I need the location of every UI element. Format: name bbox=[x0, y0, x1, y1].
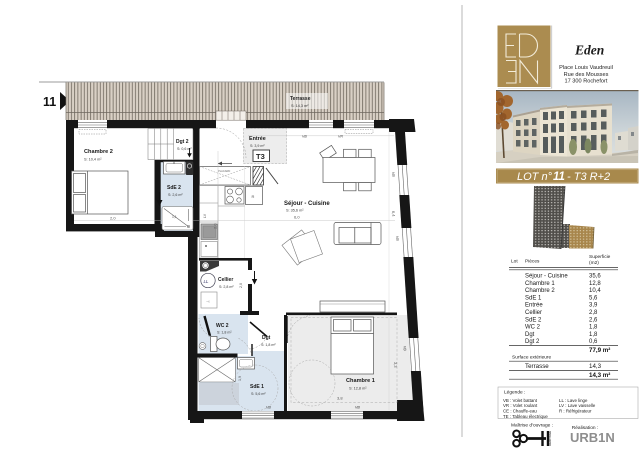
svg-text:S: 2,6 m²: S: 2,6 m² bbox=[168, 193, 183, 197]
svg-text:SdE 1: SdE 1 bbox=[250, 384, 264, 390]
svg-text:HERITAGE: HERITAGE bbox=[548, 431, 552, 446]
svg-text:VR : Volet roulant: VR : Volet roulant bbox=[503, 403, 538, 408]
svg-text:1,8: 1,8 bbox=[589, 332, 598, 338]
svg-text:LL : Lave linge: LL : Lave linge bbox=[559, 398, 588, 403]
svg-text:S: 12,8 m²: S: 12,8 m² bbox=[349, 387, 367, 391]
svg-text:0,6: 0,6 bbox=[589, 339, 598, 345]
svg-text:Légende :: Légende : bbox=[504, 390, 525, 396]
svg-text:⊣: ⊣ bbox=[206, 299, 210, 304]
svg-text:TE : Tableau électrique: TE : Tableau électrique bbox=[503, 414, 548, 419]
svg-text:S: 1,8 m²: S: 1,8 m² bbox=[261, 343, 276, 347]
svg-text:Superficie: Superficie bbox=[589, 254, 611, 260]
svg-text:Séjour - Cuisine: Séjour - Cuisine bbox=[525, 274, 568, 280]
svg-text:10,4: 10,4 bbox=[589, 288, 601, 294]
svg-text:VB: VB bbox=[391, 172, 395, 178]
svg-text:SdE 1: SdE 1 bbox=[525, 295, 542, 301]
svg-text:S: 10,4 m²: S: 10,4 m² bbox=[84, 158, 102, 162]
svg-text:12,8: 12,8 bbox=[589, 281, 601, 287]
svg-text:LL: LL bbox=[204, 279, 210, 284]
svg-text:14,3: 14,3 bbox=[589, 363, 602, 370]
svg-text:S: 35,6 m²: S: 35,6 m² bbox=[286, 209, 304, 213]
svg-text:11: 11 bbox=[553, 171, 565, 183]
svg-text:S: 5,6 m²: S: 5,6 m² bbox=[251, 392, 266, 396]
svg-text:(m2): (m2) bbox=[589, 260, 599, 266]
svg-text:Place Louis Vaudreuil: Place Louis Vaudreuil bbox=[559, 65, 613, 71]
svg-text:Chambre 2: Chambre 2 bbox=[525, 288, 555, 294]
svg-text:Chambre 1: Chambre 1 bbox=[525, 281, 555, 287]
svg-text:Entrée: Entrée bbox=[525, 303, 543, 309]
svg-text:VB : Volet battant: VB : Volet battant bbox=[503, 398, 538, 403]
svg-text:CE : Chauffe-eau: CE : Chauffe-eau bbox=[503, 409, 537, 414]
svg-text:LOT n°: LOT n° bbox=[517, 171, 553, 183]
svg-text:S: 2,8 m²: S: 2,8 m² bbox=[219, 285, 234, 289]
svg-text:2,0: 2,0 bbox=[239, 283, 243, 288]
svg-text:35,6: 35,6 bbox=[589, 274, 601, 280]
svg-text:SdE 2: SdE 2 bbox=[525, 317, 542, 323]
svg-text:6,4: 6,4 bbox=[391, 211, 396, 218]
svg-text:SdE 2: SdE 2 bbox=[167, 185, 181, 191]
svg-text:LV: LV bbox=[203, 213, 207, 218]
svg-text:WC 2: WC 2 bbox=[216, 323, 229, 329]
svg-text:Terrasse: Terrasse bbox=[290, 96, 311, 102]
svg-text:Dgt 2: Dgt 2 bbox=[176, 139, 189, 145]
svg-text:R: R bbox=[252, 194, 255, 199]
svg-text:R : Réfrigérateur: R : Réfrigérateur bbox=[559, 409, 592, 414]
svg-text:17 300 Rochefort: 17 300 Rochefort bbox=[565, 79, 608, 85]
svg-text:Dgt: Dgt bbox=[262, 335, 271, 341]
svg-text:- T3 R+2: - T3 R+2 bbox=[567, 171, 610, 183]
svg-text:2,0: 2,0 bbox=[213, 223, 218, 229]
svg-text:Terrasse: Terrasse bbox=[525, 363, 549, 370]
svg-text:LV : Lave vaisselle: LV : Lave vaisselle bbox=[559, 403, 596, 408]
svg-text:3,8: 3,8 bbox=[337, 396, 343, 401]
svg-text:Dgt 2: Dgt 2 bbox=[525, 339, 540, 345]
svg-text:1,1: 1,1 bbox=[172, 215, 177, 219]
svg-text:S: 3,9 m²: S: 3,9 m² bbox=[250, 144, 265, 148]
svg-text:3,9: 3,9 bbox=[589, 303, 598, 309]
svg-text:S: 1,8 m²: S: 1,8 m² bbox=[217, 331, 232, 335]
svg-text:Rue des Mousses: Rue des Mousses bbox=[564, 72, 609, 78]
svg-text:VB: VB bbox=[403, 346, 407, 352]
svg-text:2,8: 2,8 bbox=[589, 310, 598, 316]
svg-text:Séjour - Cuisine: Séjour - Cuisine bbox=[284, 201, 330, 207]
svg-text:Cellier: Cellier bbox=[525, 310, 542, 316]
svg-text:VB: VB bbox=[266, 406, 271, 410]
svg-text:PLACARD: PLACARD bbox=[218, 169, 230, 173]
svg-text:Chambre 2: Chambre 2 bbox=[84, 149, 113, 155]
svg-text:Cellier: Cellier bbox=[218, 277, 233, 283]
svg-text:Entrée: Entrée bbox=[249, 136, 266, 142]
svg-text:2,0: 2,0 bbox=[110, 216, 116, 221]
svg-text:2,6: 2,6 bbox=[589, 317, 598, 323]
svg-text:S: 14,3 m²: S: 14,3 m² bbox=[291, 104, 309, 108]
svg-text:14,3 m²: 14,3 m² bbox=[589, 372, 610, 379]
svg-text:1,9: 1,9 bbox=[238, 376, 242, 381]
svg-text:Pièces: Pièces bbox=[525, 259, 540, 265]
svg-text:Eden: Eden bbox=[574, 43, 604, 58]
svg-text:VR: VR bbox=[338, 135, 343, 139]
svg-text:WC 2: WC 2 bbox=[525, 325, 541, 331]
svg-text:URB1N: URB1N bbox=[570, 430, 615, 445]
svg-text:Maîtrise d'ouvrage :: Maîtrise d'ouvrage : bbox=[511, 423, 553, 429]
svg-text:6,0: 6,0 bbox=[294, 215, 300, 220]
svg-text:VB: VB bbox=[302, 135, 307, 139]
svg-text:11: 11 bbox=[43, 95, 56, 109]
svg-text:S: 0,6 m²: S: 0,6 m² bbox=[177, 147, 192, 151]
svg-text:Dgt: Dgt bbox=[525, 332, 535, 338]
svg-text:VB: VB bbox=[395, 236, 399, 242]
svg-text:Surface extérieure: Surface extérieure bbox=[512, 355, 552, 361]
svg-text:T3: T3 bbox=[256, 152, 265, 161]
svg-text:77,9 m²: 77,9 m² bbox=[589, 347, 610, 354]
svg-text:Lot: Lot bbox=[511, 259, 518, 265]
svg-text:VB: VB bbox=[355, 406, 360, 410]
svg-text:Chambre 1: Chambre 1 bbox=[346, 378, 375, 384]
svg-text:1,8: 1,8 bbox=[589, 325, 598, 331]
svg-text:5,6: 5,6 bbox=[589, 295, 598, 301]
